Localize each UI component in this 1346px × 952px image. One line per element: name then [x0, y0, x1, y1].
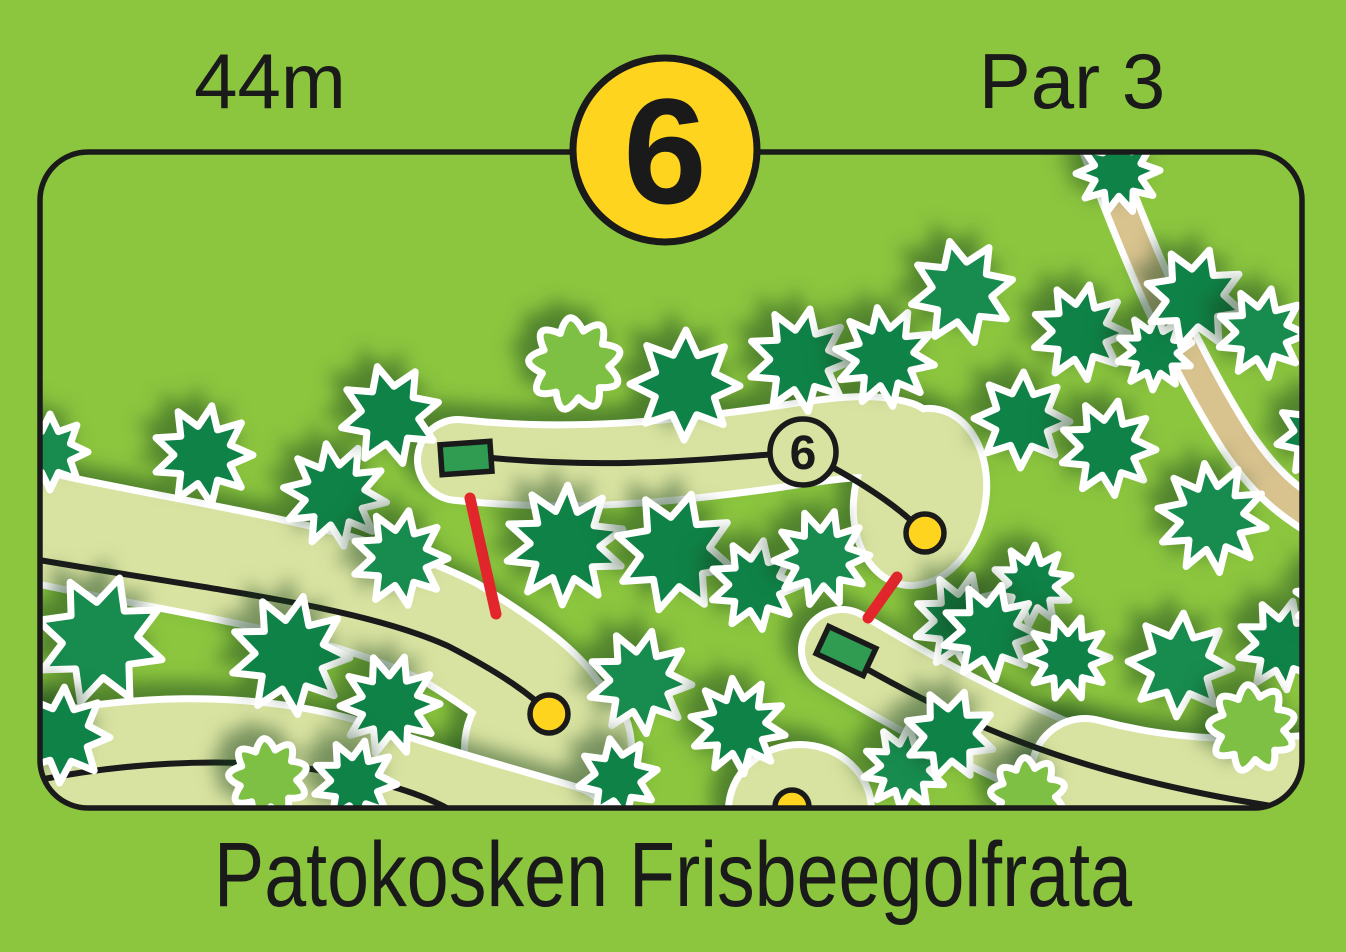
conifer-tree	[630, 330, 740, 440]
hole-number-text: 6	[623, 67, 706, 235]
conifer-tree	[974, 372, 1070, 468]
course-title: Patokosken Frisbeegolfrata	[214, 823, 1132, 926]
basket-marker-hole-6	[906, 514, 944, 552]
labels-layer: 6	[790, 427, 817, 480]
course-map: 6 6 44m Par 3 Patokosken Frisbeegolfrata	[0, 0, 1346, 952]
tee-pad-hole-6	[440, 441, 492, 474]
distance-label: 44m	[194, 37, 346, 125]
hole-number-badge: 6	[573, 58, 757, 242]
par-label: Par 3	[979, 37, 1165, 125]
hole-label-number: 6	[790, 427, 817, 480]
basket-marker-hole-left	[530, 695, 568, 733]
